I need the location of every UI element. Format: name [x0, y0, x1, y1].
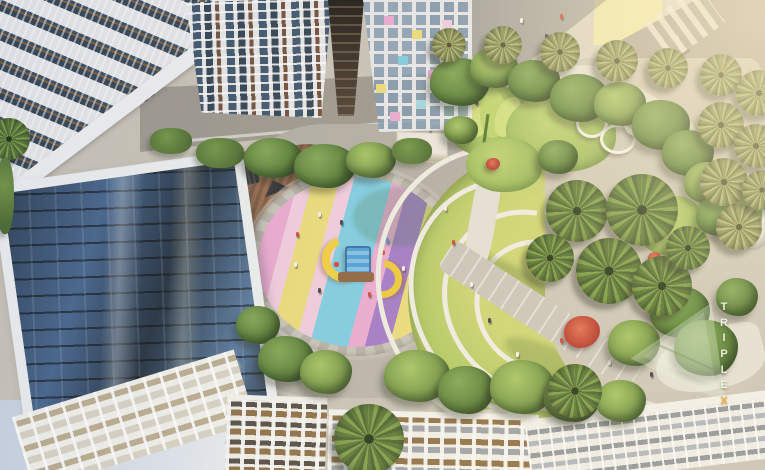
pedestrian-dot: [488, 318, 491, 323]
watermark-text-vertical: T R I P L E X: [717, 300, 731, 410]
street-hedge: [392, 138, 432, 164]
pedestrian-dot: [608, 360, 611, 365]
pedestrian-dot: [452, 240, 455, 245]
playground-visitor-dot: [340, 220, 343, 225]
palm-tree: [432, 28, 466, 62]
palm-tree: [334, 404, 404, 470]
playground-visitor-dot: [386, 238, 389, 243]
palm-tree: [576, 238, 642, 304]
playground-visitor-dot: [318, 212, 321, 217]
pedestrian-dot: [560, 14, 563, 19]
colorful-window-reflection: [376, 84, 386, 93]
park-lawn-mound: [466, 138, 542, 192]
deciduous-tree: [244, 138, 302, 178]
pedestrian-dot: [520, 18, 523, 23]
playground-visitor-dot: [402, 266, 405, 271]
palm-tree: [546, 180, 608, 242]
palm-tree: [648, 48, 688, 88]
pedestrian-dot: [444, 206, 447, 211]
colorful-window-reflection: [384, 16, 394, 25]
deciduous-tree: [346, 142, 396, 178]
colorful-window-reflection: [416, 100, 426, 109]
palm-tree: [606, 174, 678, 246]
tower-bottom-a: [225, 394, 328, 470]
deciduous-tree: [538, 140, 578, 174]
colorful-window-reflection: [398, 56, 408, 65]
deciduous-tree: [300, 350, 352, 394]
playground-visitor-dot: [294, 262, 297, 267]
playground-visitor-dot: [318, 288, 321, 293]
palm-tree: [596, 40, 638, 82]
palm-tree: [484, 26, 522, 64]
watermark-letter: E: [717, 378, 731, 394]
playground-visitor-dot: [368, 292, 371, 297]
play-platform-brown: [338, 272, 374, 282]
watermark-letter: P: [717, 347, 731, 363]
deciduous-tree: [444, 116, 478, 144]
play-accent-red: [334, 262, 339, 267]
watermark-letter-x: X: [717, 394, 731, 410]
tower-top-center-left: [186, 0, 336, 123]
colorful-window-reflection: [412, 30, 422, 39]
palm-tree: [716, 204, 762, 250]
playground-visitor-dot: [296, 232, 299, 237]
left-edge-hedge: [0, 158, 14, 234]
watermark-letter: I: [717, 331, 731, 347]
street-hedge: [196, 138, 244, 168]
watermark-letter: L: [717, 363, 731, 379]
street-hedge: [150, 128, 192, 154]
deciduous-tree: [438, 366, 494, 414]
palm-tree: [666, 226, 710, 270]
watermark-letter: R: [717, 316, 731, 332]
palm-tree: [700, 158, 748, 206]
palm-tree: [540, 32, 580, 72]
watermark-letter: T: [717, 300, 731, 316]
pedestrian-dot: [560, 338, 563, 343]
palm-tree: [548, 364, 602, 418]
aerial-render-scene: T R I P L E X: [0, 0, 765, 470]
colorful-window-reflection: [390, 112, 400, 121]
pedestrian-dot: [470, 282, 473, 287]
palm-tree: [526, 234, 574, 282]
pedestrian-dot: [516, 352, 519, 357]
